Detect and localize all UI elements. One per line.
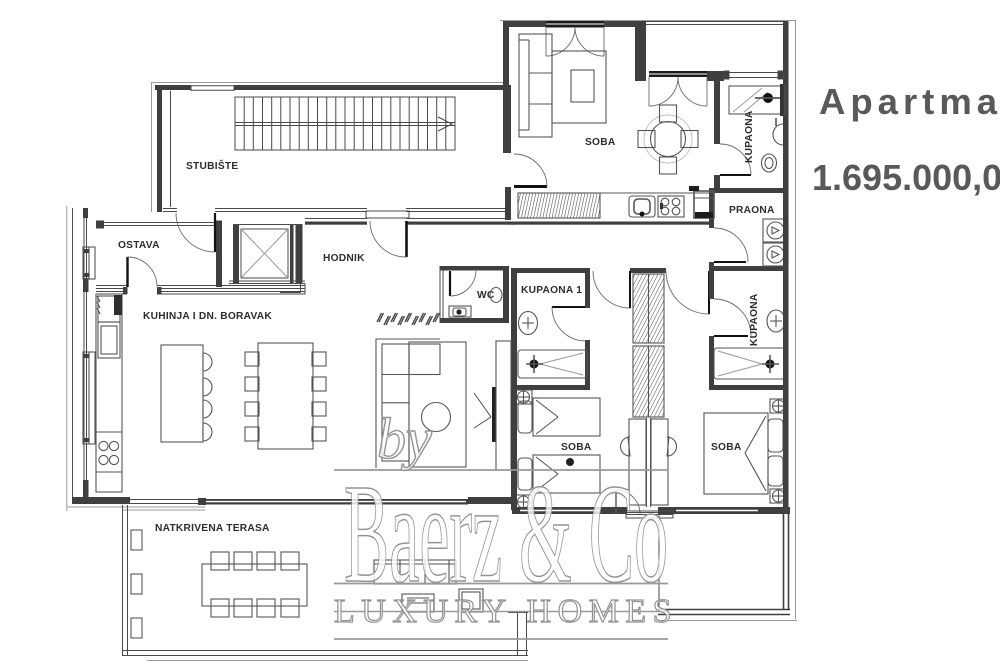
svg-text:PRAONA: PRAONA bbox=[729, 205, 775, 216]
svg-text:KUPAONA: KUPAONA bbox=[744, 110, 755, 163]
svg-text:STUBIŠTE: STUBIŠTE bbox=[186, 159, 238, 172]
svg-text:KUPAONA 1: KUPAONA 1 bbox=[521, 285, 582, 296]
svg-text:Apartman: Apartman bbox=[819, 81, 1000, 122]
svg-text:LUXURY HOMES: LUXURY HOMES bbox=[334, 593, 678, 630]
svg-text:SOBA: SOBA bbox=[711, 442, 742, 453]
svg-text:SOBA: SOBA bbox=[561, 442, 592, 453]
svg-text:1.695.000,00 €: 1.695.000,00 € bbox=[812, 157, 1000, 198]
svg-text:KUHINJA I DN. BORAVAK: KUHINJA I DN. BORAVAK bbox=[143, 311, 272, 322]
svg-text:SOBA: SOBA bbox=[585, 137, 616, 148]
svg-text:KUPAONA: KUPAONA bbox=[749, 293, 760, 346]
svg-text:WC: WC bbox=[477, 290, 495, 301]
svg-text:HODNIK: HODNIK bbox=[323, 253, 365, 264]
svg-text:OSTAVA: OSTAVA bbox=[118, 240, 160, 251]
svg-text:Baerz & Co: Baerz & Co bbox=[344, 454, 668, 612]
svg-text:NATKRIVENA TERASA: NATKRIVENA TERASA bbox=[155, 523, 270, 534]
